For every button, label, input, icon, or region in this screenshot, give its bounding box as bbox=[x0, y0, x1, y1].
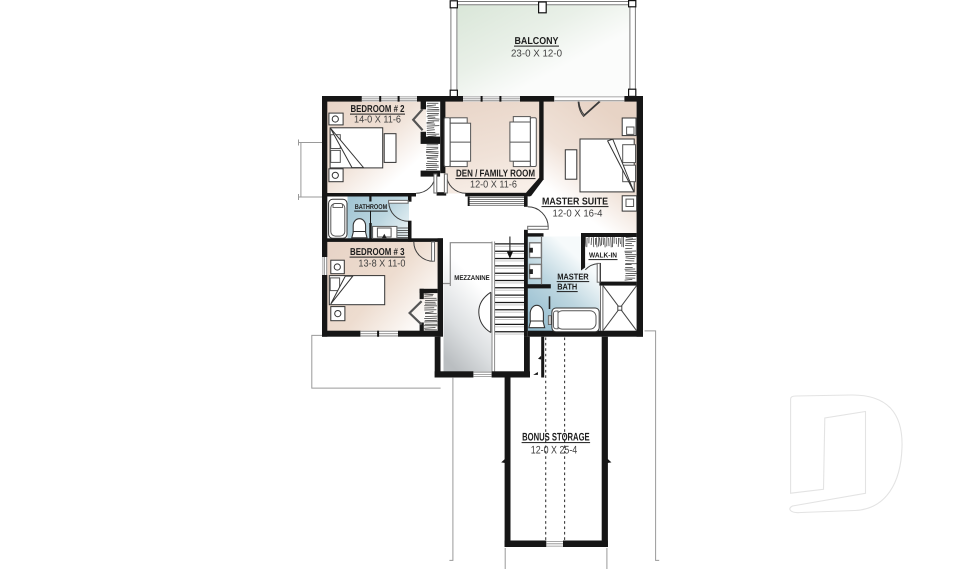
svg-text:MASTER SUITE: MASTER SUITE bbox=[542, 197, 608, 208]
svg-text:BONUS STORAGE: BONUS STORAGE bbox=[522, 432, 590, 444]
svg-text:13-8 X 11-0: 13-8 X 11-0 bbox=[358, 259, 405, 270]
svg-text:14-0 X 11-6: 14-0 X 11-6 bbox=[354, 115, 401, 126]
svg-text:BALCONY: BALCONY bbox=[515, 36, 559, 47]
svg-text:BATHROOM: BATHROOM bbox=[355, 204, 388, 211]
svg-text:12-0 X 25-4: 12-0 X 25-4 bbox=[531, 445, 578, 457]
svg-text:WALK-IN: WALK-IN bbox=[589, 251, 617, 260]
svg-text:BEDROOM # 2: BEDROOM # 2 bbox=[351, 104, 405, 115]
svg-text:MEZZANINE: MEZZANINE bbox=[454, 275, 490, 282]
svg-text:MASTER: MASTER bbox=[557, 272, 589, 282]
svg-text:12-0 X 16-4: 12-0 X 16-4 bbox=[553, 209, 603, 220]
svg-text:BATH: BATH bbox=[557, 282, 577, 292]
svg-text:12-0 X 11-6: 12-0 X 11-6 bbox=[470, 180, 517, 191]
svg-text:23-0 X 12-0: 23-0 X 12-0 bbox=[511, 49, 562, 60]
svg-text:BEDROOM # 3: BEDROOM # 3 bbox=[350, 247, 405, 258]
svg-text:DEN / FAMILY ROOM: DEN / FAMILY ROOM bbox=[456, 169, 535, 180]
